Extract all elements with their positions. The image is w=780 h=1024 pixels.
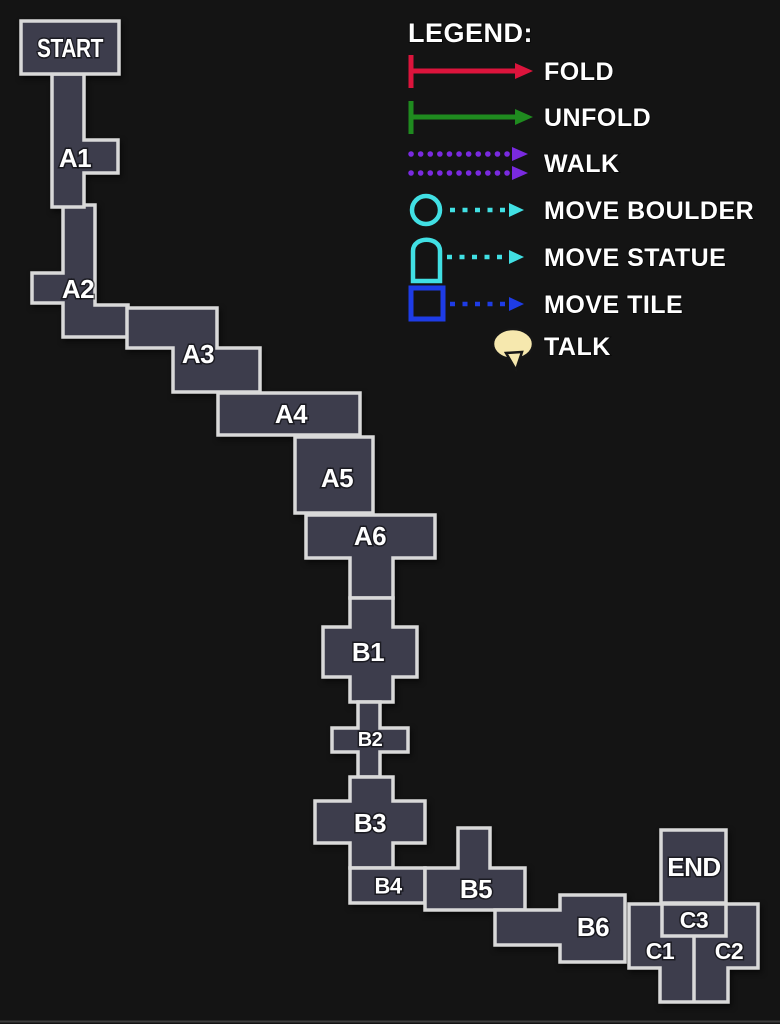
legend-item-unfold-label: UNFOLD: [544, 104, 651, 132]
walk-arrowhead-bottom: [512, 166, 528, 180]
talk-bubble-tail: [506, 352, 522, 370]
tile-icon: [411, 288, 524, 319]
legend-item-unfold: UNFOLD: [411, 101, 651, 134]
legend-item-move-tile: MOVE TILE: [411, 288, 683, 319]
room-a2-label: A2: [62, 274, 94, 304]
legend-item-move-boulder-label: MOVE BOULDER: [544, 197, 754, 225]
room-a4-label: A4: [275, 399, 308, 429]
walk-arrowhead-top: [512, 147, 528, 161]
boulder-icon: [412, 196, 524, 224]
legend-item-talk: TALK: [493, 329, 611, 370]
walk-arrows-icon: [411, 147, 528, 180]
fold-arrow-icon: [411, 55, 533, 88]
legend-item-talk-label: TALK: [544, 333, 611, 361]
statue-arrowhead: [509, 250, 524, 264]
room-b2-label: B2: [358, 729, 383, 751]
statue-icon: [413, 240, 524, 281]
legend-item-move-boulder: MOVE BOULDER: [412, 196, 754, 225]
room-b6-label: B6: [577, 912, 609, 942]
legend-item-move-statue: MOVE STATUE: [413, 240, 726, 281]
room-a1-label: A1: [59, 143, 91, 173]
room-a3-label: A3: [182, 339, 214, 369]
map-canvas: START A1 A2 A3 A4 A5 A6 B1 B2 B3 B4 B5 B…: [0, 0, 780, 1024]
rooms-layer: [21, 21, 758, 1002]
room-b4-label: B4: [374, 874, 402, 899]
room-start-label: START: [37, 33, 103, 63]
legend-title: LEGEND:: [408, 18, 533, 48]
room-a6-label: A6: [354, 521, 386, 551]
room-a1: [52, 74, 118, 207]
legend-item-fold: FOLD: [411, 55, 614, 88]
room-a5-label: A5: [321, 463, 353, 493]
legend-item-fold-label: FOLD: [544, 58, 614, 86]
room-c1-label: C1: [646, 938, 675, 964]
dungeon-route-map: START A1 A2 A3 A4 A5 A6 B1 B2 B3 B4 B5 B…: [0, 0, 780, 1024]
tile-arrowhead: [509, 297, 524, 311]
tile-square: [411, 288, 443, 319]
room-c2-label: C2: [715, 938, 743, 964]
legend-item-move-statue-label: MOVE STATUE: [544, 244, 726, 272]
room-end-label: END: [667, 852, 720, 882]
room-a2: [32, 205, 128, 337]
legend: LEGEND: FOLD UNFOLD: [408, 18, 754, 370]
unfold-arrow-icon: [411, 101, 533, 134]
legend-item-move-tile-label: MOVE TILE: [544, 291, 683, 319]
room-b1-label: B1: [352, 637, 384, 667]
talk-bubble-icon: [493, 329, 533, 370]
legend-item-walk: WALK: [411, 147, 620, 180]
legend-item-walk-label: WALK: [544, 150, 620, 178]
room-b5-label: B5: [460, 874, 492, 904]
fold-arrowhead: [515, 63, 533, 79]
unfold-arrowhead: [515, 109, 533, 125]
statue-shape: [413, 240, 440, 281]
boulder-circle: [412, 196, 440, 224]
room-c3-label: C3: [680, 907, 708, 933]
boulder-arrowhead: [509, 203, 524, 217]
room-b3-label: B3: [354, 808, 386, 838]
